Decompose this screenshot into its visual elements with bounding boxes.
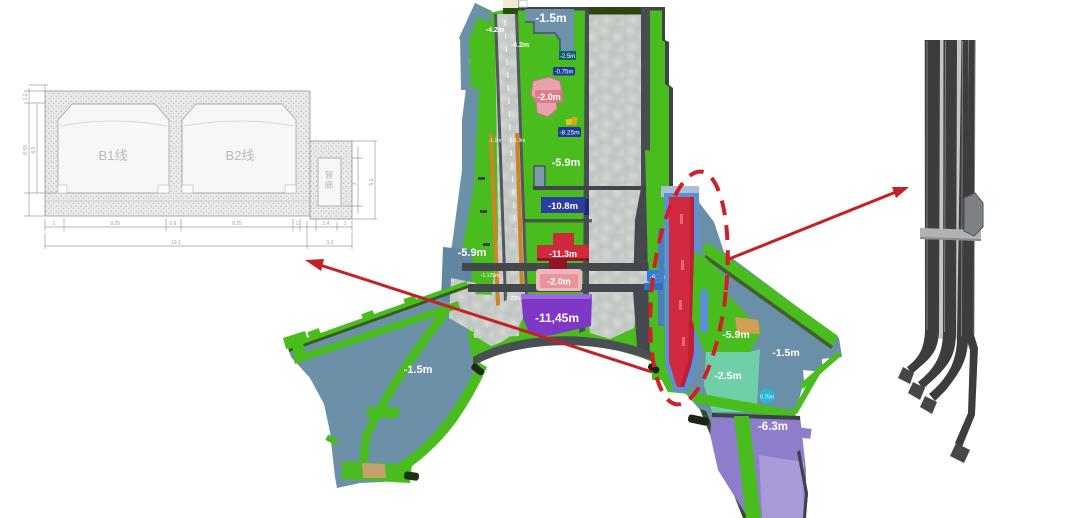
svg-text:-5.9m: -5.9m (722, 329, 749, 341)
svg-text:0.75m: 0.75m (760, 395, 774, 401)
svg-text:-1.125m: -1.125m (481, 273, 499, 279)
svg-text:-8.25m: -8.25m (559, 130, 579, 137)
svg-text:-0.75m: -0.75m (555, 70, 574, 76)
svg-text:1: 1 (53, 221, 56, 227)
svg-text:-1.3m: -1.3m (513, 138, 526, 144)
svg-text:-2.5m: -2.5m (560, 54, 575, 60)
svg-text:9.25: 9.25 (110, 221, 120, 227)
svg-text:-1.5m: -1.5m (535, 11, 566, 25)
svg-text:2.4: 2.4 (323, 221, 330, 227)
svg-text:8.55: 8.55 (23, 145, 29, 155)
svg-text:-11,45m: -11,45m (535, 311, 579, 325)
svg-text:1: 1 (296, 221, 299, 227)
svg-text:-10.8m: -10.8m (548, 201, 578, 212)
svg-text:3.2: 3.2 (327, 240, 334, 246)
svg-text:-6.3m: -6.3m (758, 421, 788, 433)
svg-text:0.6: 0.6 (170, 221, 177, 227)
svg-text:19.1: 19.1 (171, 240, 181, 246)
svg-text:-1.5m: -1.5m (404, 364, 433, 376)
svg-text:-2.5m: -2.5m (714, 370, 741, 382)
svg-text:1.2: 1.2 (23, 93, 29, 100)
svg-text:3: 3 (352, 182, 358, 185)
svg-text:1: 1 (344, 221, 347, 227)
svg-text:5.2: 5.2 (369, 178, 375, 185)
svg-text:-11.3m: -11.3m (549, 249, 577, 259)
svg-text:B2线: B2线 (226, 148, 255, 163)
svg-text:-2.0m: -2.0m (537, 92, 561, 102)
svg-text:-5.9m: -5.9m (458, 247, 487, 259)
svg-text:-4.2m: -4.2m (486, 27, 504, 34)
svg-text:-5.9m: -5.9m (552, 157, 581, 169)
svg-text:-2.0m: -2.0m (547, 277, 571, 287)
svg-text:-1.225m: -1.225m (505, 296, 523, 302)
svg-text:管: 管 (325, 170, 334, 180)
svg-text:B1线: B1线 (99, 148, 128, 163)
svg-text:-4.2m: -4.2m (511, 42, 529, 49)
svg-text:廊: 廊 (325, 180, 334, 190)
svg-text:6.3: 6.3 (31, 146, 37, 153)
svg-text:8.25: 8.25 (232, 221, 242, 227)
svg-text:-1.5m: -1.5m (772, 347, 799, 359)
svg-text:-1.1m: -1.1m (489, 138, 502, 144)
